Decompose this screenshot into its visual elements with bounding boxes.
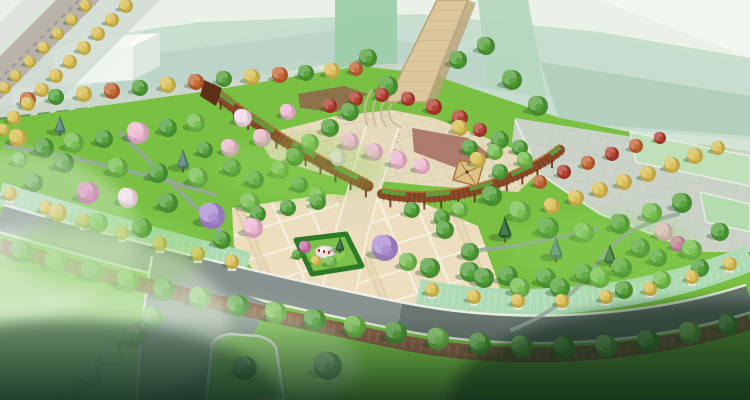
rock-inscription-mark (328, 251, 330, 254)
rock-inscription-mark (323, 250, 325, 253)
rendering-viewport (0, 0, 750, 400)
park-aerial-rendering (0, 0, 750, 400)
rock-inscription-mark (318, 249, 320, 252)
